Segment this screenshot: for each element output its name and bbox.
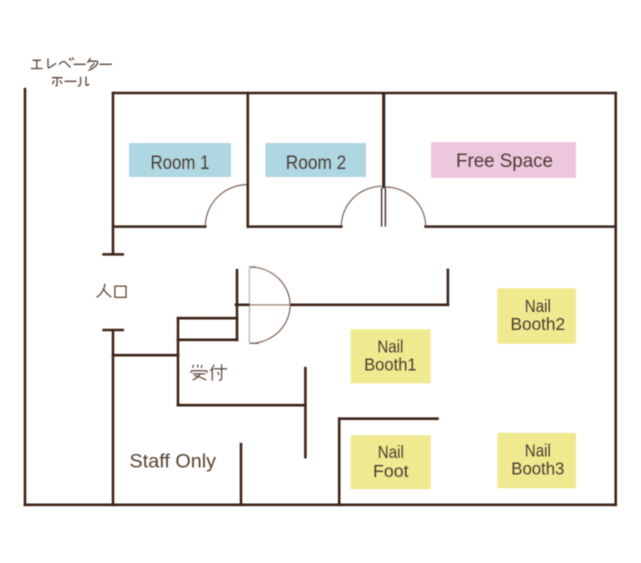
- svg-text:Booth1: Booth1: [364, 354, 417, 374]
- svg-text:Room 1: Room 1: [151, 152, 210, 174]
- svg-text:Staff Only: Staff Only: [130, 451, 217, 472]
- svg-text:Nail: Nail: [525, 296, 551, 316]
- svg-text:Room 2: Room 2: [286, 152, 347, 174]
- svg-text:Nail: Nail: [377, 336, 403, 356]
- svg-text:Nail: Nail: [378, 442, 404, 462]
- svg-text:Booth2: Booth2: [511, 314, 566, 334]
- svg-text:Free Space: Free Space: [456, 150, 553, 172]
- svg-text:Foot: Foot: [373, 461, 409, 481]
- svg-text:Booth3: Booth3: [511, 458, 564, 478]
